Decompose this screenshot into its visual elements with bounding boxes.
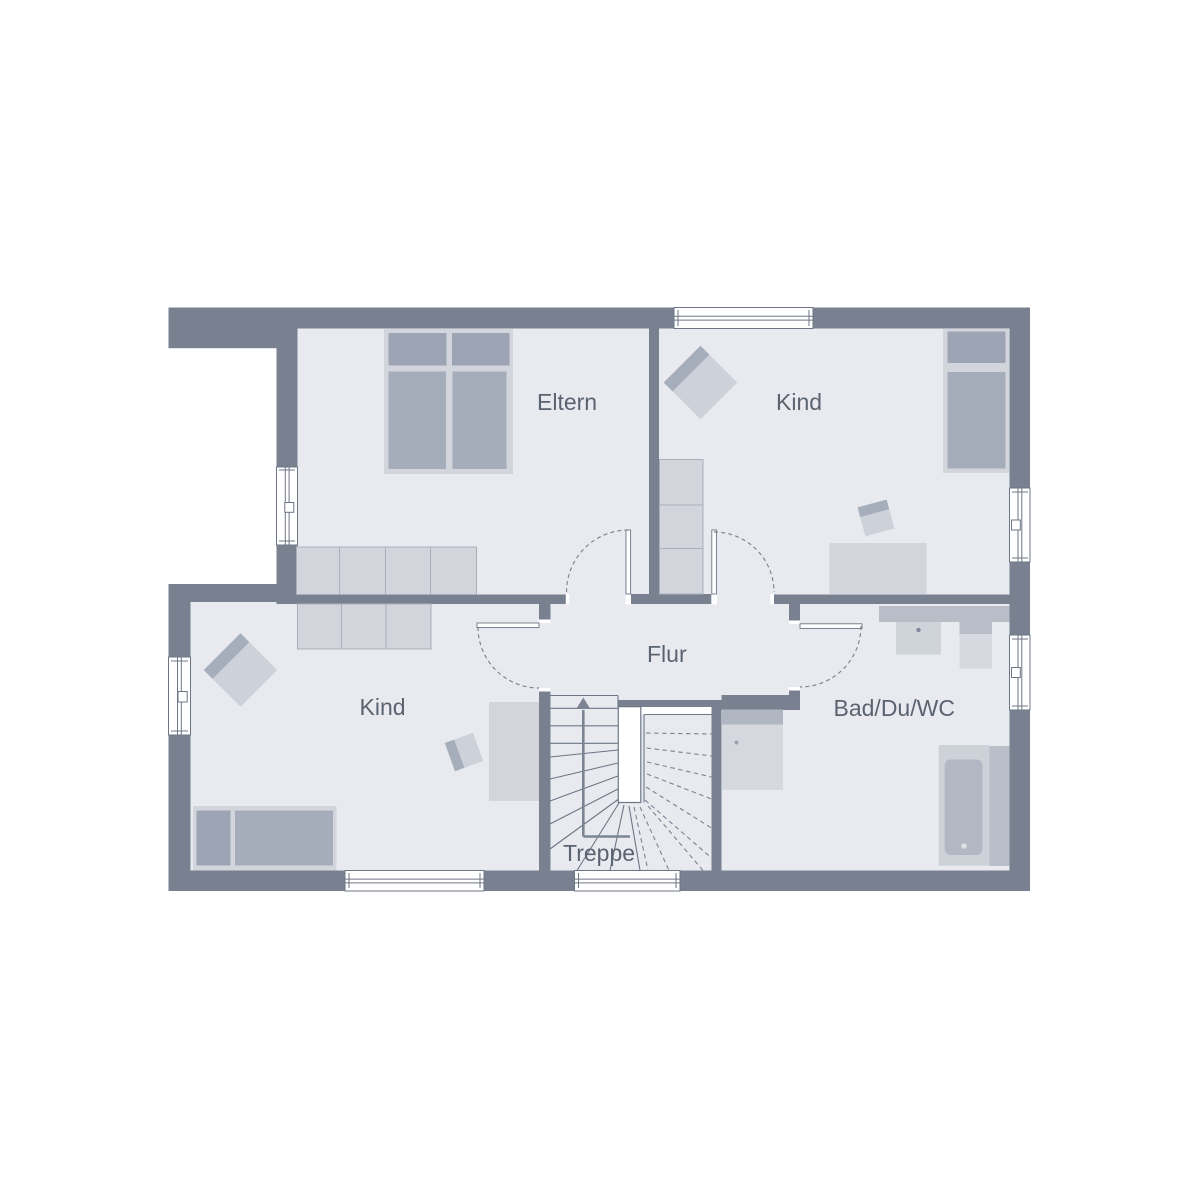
svg-text:Treppe: Treppe	[563, 840, 635, 866]
svg-text:Eltern: Eltern	[537, 389, 597, 415]
svg-text:Kind: Kind	[776, 389, 822, 415]
svg-text:Bad/Du/WC: Bad/Du/WC	[834, 695, 955, 721]
svg-text:Kind: Kind	[360, 694, 406, 720]
svg-text:Flur: Flur	[647, 641, 687, 667]
